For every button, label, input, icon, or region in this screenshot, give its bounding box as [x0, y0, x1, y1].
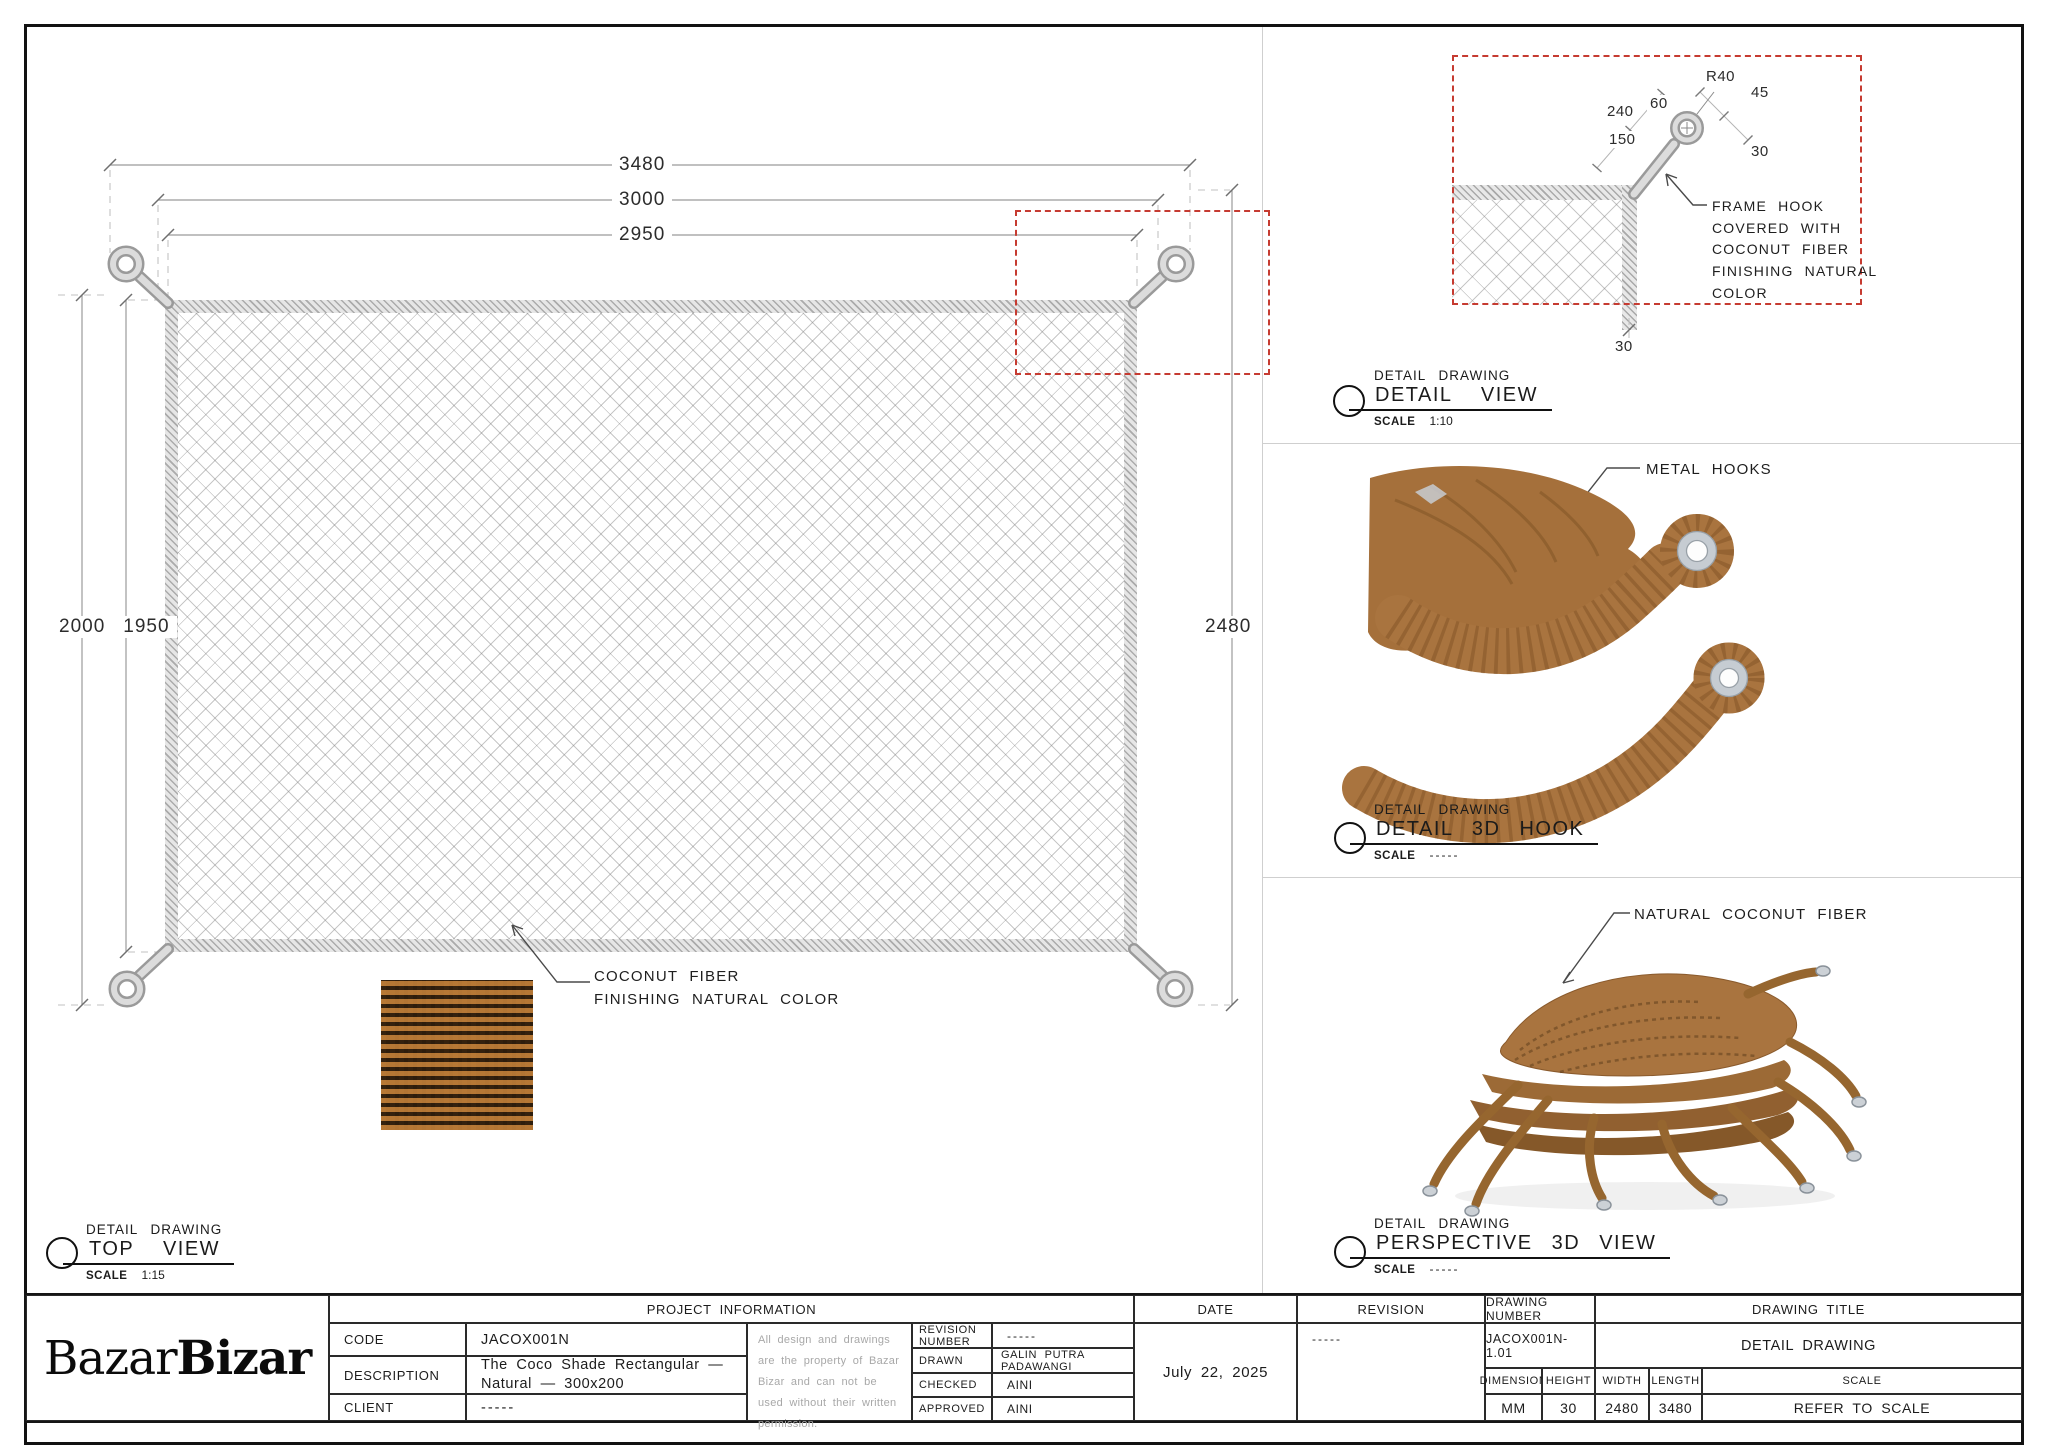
section-kicker: DETAIL DRAWING: [1374, 802, 1510, 817]
approved-value: AINI: [992, 1397, 1134, 1421]
brand-logo: BazarBizar: [44, 1331, 311, 1386]
section-title: TOP VIEW: [63, 1238, 234, 1265]
section-kicker: DETAIL DRAWING: [1374, 368, 1510, 383]
metal-hooks-callout: METAL HOOKS: [1646, 458, 1772, 481]
section-scale: SCALE1:15: [86, 1268, 165, 1282]
checked-value: AINI: [992, 1373, 1134, 1397]
drawing-number-header: DRAWING NUMBER: [1485, 1295, 1595, 1323]
coconut-fiber-callout: COCONUT FIBER FINISHING NATURAL COLOR: [594, 965, 839, 1012]
dimension-value: MM: [1485, 1394, 1542, 1421]
dim-45: 45: [1748, 84, 1772, 101]
drawn-label: DRAWN: [912, 1348, 992, 1373]
revision-number-value: -----: [992, 1323, 1134, 1348]
approved-label: APPROVED: [912, 1397, 992, 1421]
scale-value: REFER TO SCALE: [1702, 1394, 2022, 1421]
length-value: 3480: [1649, 1394, 1702, 1421]
section-kicker: DETAIL DRAWING: [86, 1222, 222, 1237]
detail-callout-box: [1015, 210, 1270, 375]
dim-length-overall: 3480: [612, 154, 672, 176]
title-block: BazarBizar PROJECT INFORMATION DATE REVI…: [24, 1293, 2024, 1423]
dim-240: 240: [1604, 103, 1637, 120]
code-value: JACOX001N: [466, 1323, 747, 1356]
section-title: DETAIL VIEW: [1349, 384, 1552, 411]
height-value: 30: [1542, 1394, 1595, 1421]
dim-2000: 2000: [59, 616, 105, 637]
dim-1950: 1950: [123, 616, 169, 637]
width-value: 2480: [1595, 1394, 1649, 1421]
description-value: The Coco Shade Rectangular — Natural — 3…: [466, 1356, 747, 1394]
dim-width-left: 20001950: [52, 616, 177, 638]
section-title: DETAIL 3D HOOK: [1350, 818, 1598, 845]
frame-hook-note: FRAME HOOK COVERED WITH COCONUT FIBER FI…: [1712, 196, 1882, 304]
client-value: -----: [466, 1394, 747, 1421]
drawing-sheet: 3480 3000 2950 20001950 2480 COCONUT FIB…: [0, 0, 2048, 1448]
dim-30-bottom: 30: [1612, 338, 1636, 355]
code-label: CODE: [329, 1323, 466, 1356]
revision-header: REVISION: [1297, 1295, 1485, 1323]
section-scale: SCALE1:10: [1374, 414, 1453, 428]
perspective-photo-illustration: [1423, 966, 1866, 1216]
disclaimer-text: All design and drawings are the property…: [748, 1324, 911, 1440]
disclaimer-cell: All design and drawings are the property…: [747, 1323, 912, 1421]
section-scale: SCALE-----: [1374, 1262, 1459, 1276]
dim-length-hooks: 3000: [612, 189, 672, 211]
height-header: HEIGHT: [1542, 1368, 1595, 1394]
drawing-title-header: DRAWING TITLE: [1595, 1295, 2022, 1323]
length-header: LENGTH: [1649, 1368, 1702, 1394]
revision-number-label: REVISION NUMBER: [912, 1323, 992, 1348]
section-kicker: DETAIL DRAWING: [1374, 1216, 1510, 1231]
dim-60: 60: [1647, 95, 1671, 112]
section-title: PERSPECTIVE 3D VIEW: [1350, 1232, 1670, 1259]
description-label: DESCRIPTION: [329, 1356, 466, 1394]
date-value: July 22, 2025: [1134, 1323, 1297, 1421]
drawing-title-value: DETAIL DRAWING: [1595, 1323, 2022, 1368]
dim-30-right: 30: [1748, 143, 1772, 160]
date-header: DATE: [1134, 1295, 1297, 1323]
section-scale: SCALE-----: [1374, 848, 1459, 862]
client-label: CLIENT: [329, 1394, 466, 1421]
checked-label: CHECKED: [912, 1373, 992, 1397]
scale-header: SCALE: [1702, 1368, 2022, 1394]
dimension-header: DIMENSION: [1485, 1368, 1542, 1394]
dim-length-net: 2950: [612, 224, 672, 246]
dim-150: 150: [1606, 131, 1639, 148]
width-header: WIDTH: [1595, 1368, 1649, 1394]
dim-width-right: 2480: [1198, 616, 1258, 638]
logo-cell: BazarBizar: [26, 1295, 329, 1421]
project-information-header: PROJECT INFORMATION: [329, 1295, 1134, 1323]
hook-photo-illustration: [1364, 466, 1755, 821]
dim-r40: R40: [1703, 68, 1738, 85]
natural-coconut-fiber-callout: NATURAL COCONUT FIBER: [1634, 903, 1868, 926]
drawing-number-value: JACOX001N-1.01: [1485, 1323, 1595, 1368]
revision-value: -----: [1297, 1323, 1485, 1421]
drawn-value: GALIN PUTRA PADAWANGI: [992, 1348, 1134, 1373]
